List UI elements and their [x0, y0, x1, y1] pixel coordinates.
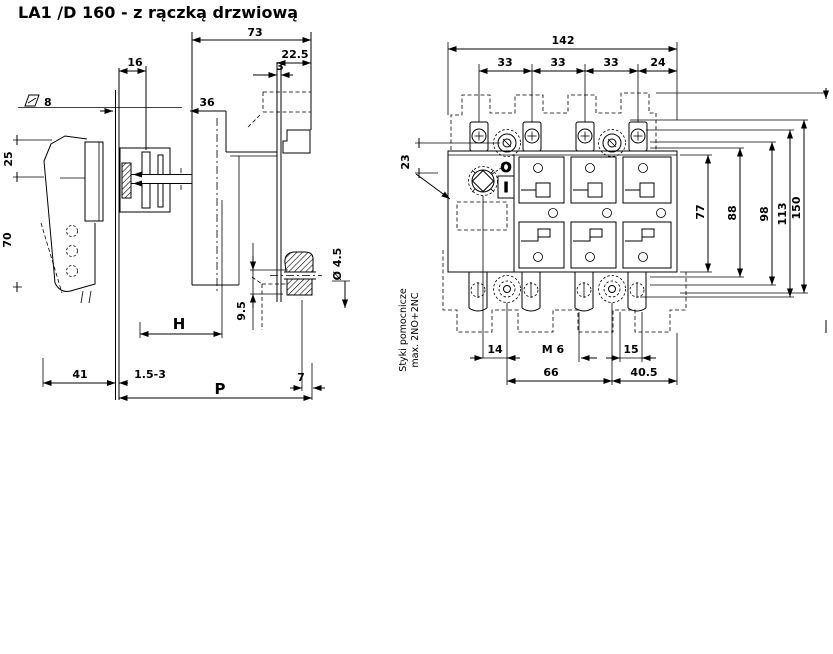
- mounting-boss-upper: [285, 252, 313, 272]
- dim-label: 24: [650, 56, 666, 69]
- aux-contacts-note: Styki pomocnicze max. 2NO+2NC: [398, 288, 421, 372]
- switch-body-side: [192, 32, 277, 292]
- dim-door-thickness: 1.5-3: [119, 368, 166, 383]
- dim-label: 33: [497, 56, 512, 69]
- dim-hole-diameter: Ø 4.5: [331, 248, 350, 308]
- fixing-screw: [494, 276, 521, 303]
- coupling-hatched-section: [122, 163, 131, 198]
- drawing-canvas: LA1 /D 160 - z rączką drzwiową: [0, 0, 833, 654]
- dim-shaft-square: 8: [18, 95, 182, 109]
- dim-label: 23: [399, 154, 412, 169]
- dim-label: M 6: [542, 343, 565, 356]
- dim-label: H: [173, 315, 186, 333]
- knob-cutout-dashed: [457, 202, 507, 230]
- dim-label: 150: [790, 196, 803, 219]
- handle-grip-hole: [67, 266, 78, 277]
- door-handle-side: [41, 136, 103, 303]
- terminal-screw: [575, 272, 593, 311]
- fixing-screw: [599, 276, 626, 303]
- dim-boss-offset: 7: [290, 300, 325, 391]
- dim-handle-depth: 41: [43, 358, 116, 387]
- fixing-screw: [599, 130, 626, 157]
- contact-blade: [521, 183, 550, 197]
- terminal-screw: [522, 272, 540, 311]
- switch-body-front: [448, 151, 677, 358]
- dim-label: 16: [127, 56, 143, 69]
- dim-label: 98: [758, 206, 771, 221]
- technical-drawing-page: LA1 /D 160 - z rączką drzwiową: [0, 0, 833, 654]
- dim-heights: 77 88 98 113 150: [630, 88, 826, 333]
- dim-label: 70: [1, 232, 14, 248]
- note-line-2: max. 2NO+2NC: [410, 292, 421, 367]
- contact-blade: [625, 229, 654, 241]
- handle-grip-hole: [67, 226, 78, 237]
- terminal-screw: [470, 122, 488, 151]
- dim-label: 15: [623, 343, 638, 356]
- terminal-screw: [523, 122, 541, 151]
- dim-label: 73: [247, 26, 262, 39]
- bottom-terminals: [469, 272, 646, 311]
- dim-label: 33: [603, 56, 618, 69]
- dim-handle-length: 70: [1, 232, 22, 292]
- contact-blade: [521, 229, 550, 241]
- terminal-screw: [629, 122, 647, 151]
- dim-label: 40.5: [630, 366, 657, 379]
- dim-label: 14: [487, 343, 503, 356]
- position-on-label: I: [504, 181, 509, 196]
- dim-label: P: [215, 380, 226, 398]
- dim-label: 113: [776, 203, 789, 226]
- dim-H: H: [140, 200, 222, 338]
- dim-label: 77: [694, 204, 707, 219]
- dim-boss-depth: 9.5: [235, 243, 288, 330]
- handle-hub: [85, 142, 103, 221]
- cabinet-door-section: [116, 68, 120, 400]
- dim-label: 8: [44, 96, 52, 109]
- dim-label: Ø 4.5: [331, 248, 344, 281]
- dim-label: 88: [726, 205, 739, 220]
- pole-compartments: [519, 157, 671, 268]
- drawing-title: LA1 /D 160 - z rączką drzwiową: [18, 3, 298, 22]
- dim-pole-pitches: 33 33 33 24: [479, 56, 677, 122]
- mounting-boss-lower: [287, 279, 312, 295]
- dim-label: 41: [72, 368, 87, 381]
- dim-label: 36: [199, 96, 215, 109]
- contact-blade: [573, 183, 602, 197]
- position-off-label: O: [500, 161, 511, 176]
- dim-label: 25: [2, 151, 15, 166]
- adapter-plate: [283, 130, 310, 153]
- dim-label: 7: [297, 371, 305, 384]
- side-view: 73 22.5 3 16 8 36: [1, 26, 350, 400]
- shaft-coupling-mechanism: [120, 148, 192, 212]
- dim-fixing-bottom: 14 M 6 15 66 40.5: [470, 303, 677, 385]
- dim-label: 9.5: [235, 301, 248, 321]
- dim-panel-thickness: 3: [253, 60, 293, 75]
- note-line-1: Styki pomocnicze: [398, 288, 409, 372]
- handle-grip-hole: [67, 246, 78, 257]
- terminal-screw: [628, 272, 646, 311]
- contact-blade: [625, 183, 654, 197]
- dim-label: 1.5-3: [134, 368, 166, 381]
- front-view: O I: [398, 34, 826, 385]
- dim-label: 3: [276, 60, 284, 73]
- dim-label: 66: [543, 366, 559, 379]
- rotary-knob: O I: [457, 161, 514, 230]
- dim-width-total: 142: [448, 34, 677, 120]
- dim-label: 33: [550, 56, 565, 69]
- dim-front-width: 16: [119, 56, 146, 150]
- dim-depth-total: 73: [192, 26, 311, 130]
- dim-label: 22.5: [281, 48, 308, 61]
- dim-label: 142: [552, 34, 575, 47]
- terminal-screw: [469, 272, 487, 311]
- terminal-screw: [576, 122, 594, 151]
- contact-blade: [573, 229, 602, 241]
